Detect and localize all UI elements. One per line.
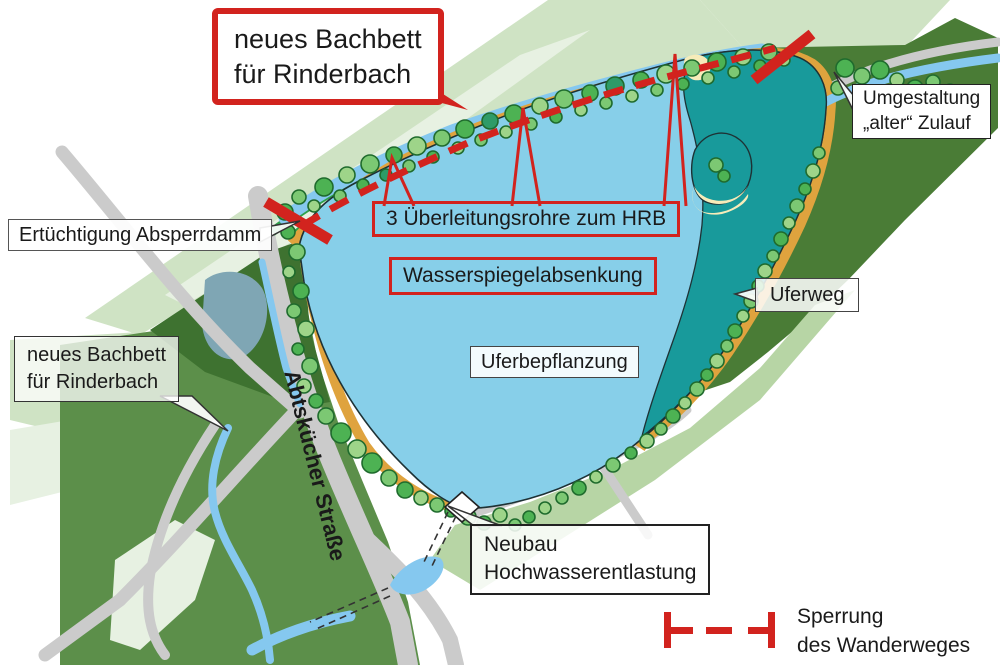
callout-new-streambed: neues Bachbett für Rinderbach bbox=[212, 8, 444, 105]
legend-trail-closure: Sperrung des Wanderweges bbox=[797, 602, 970, 661]
label-new-streambed: neues Bachbett für Rinderbach bbox=[14, 336, 179, 402]
site-plan-map: neues Bachbett für Rinderbach Umgestaltu… bbox=[0, 0, 1000, 665]
label-shore-planting: Uferbepflanzung bbox=[470, 346, 639, 378]
label-line: „alter“ Zulauf bbox=[863, 112, 980, 137]
label-spillway: Neubau Hochwasserentlastung bbox=[470, 524, 710, 595]
label-line: Hochwasserentlastung bbox=[484, 559, 696, 587]
label-dam-upgrade: Ertüchtigung Absperrdamm bbox=[8, 219, 272, 251]
label-transfer-pipes: 3 Überleitungsrohre zum HRB bbox=[372, 201, 680, 237]
label-old-inflow: Umgestaltung „alter“ Zulauf bbox=[852, 84, 991, 139]
closure-dashed-line-icon bbox=[664, 612, 775, 648]
callout-line: für Rinderbach bbox=[234, 57, 422, 92]
label-shore-path: Uferweg bbox=[755, 278, 859, 312]
label-line: neues Bachbett bbox=[27, 342, 166, 369]
legend-line: Sperrung bbox=[797, 602, 970, 631]
label-line: Neubau bbox=[484, 531, 696, 559]
callout-line: neues Bachbett bbox=[234, 22, 422, 57]
label-line: für Rinderbach bbox=[27, 369, 166, 396]
label-line: Umgestaltung bbox=[863, 87, 980, 112]
legend-line: des Wanderweges bbox=[797, 631, 970, 660]
label-water-level-lowering: Wasserspiegelabsenkung bbox=[389, 257, 657, 295]
